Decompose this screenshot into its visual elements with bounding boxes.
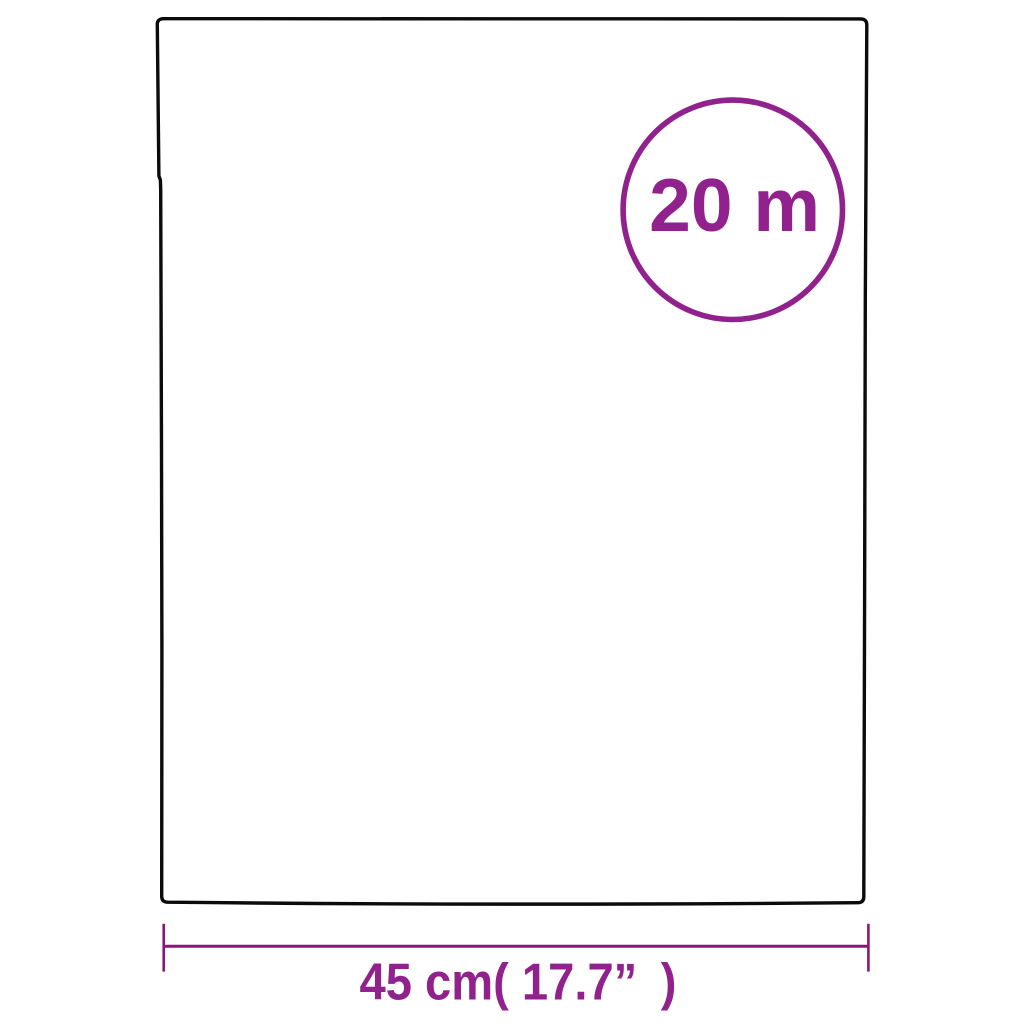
svg-text:20 m: 20 m bbox=[649, 163, 820, 247]
svg-text:45 cm( 17.7” ): 45 cm( 17.7” ) bbox=[360, 953, 677, 1011]
